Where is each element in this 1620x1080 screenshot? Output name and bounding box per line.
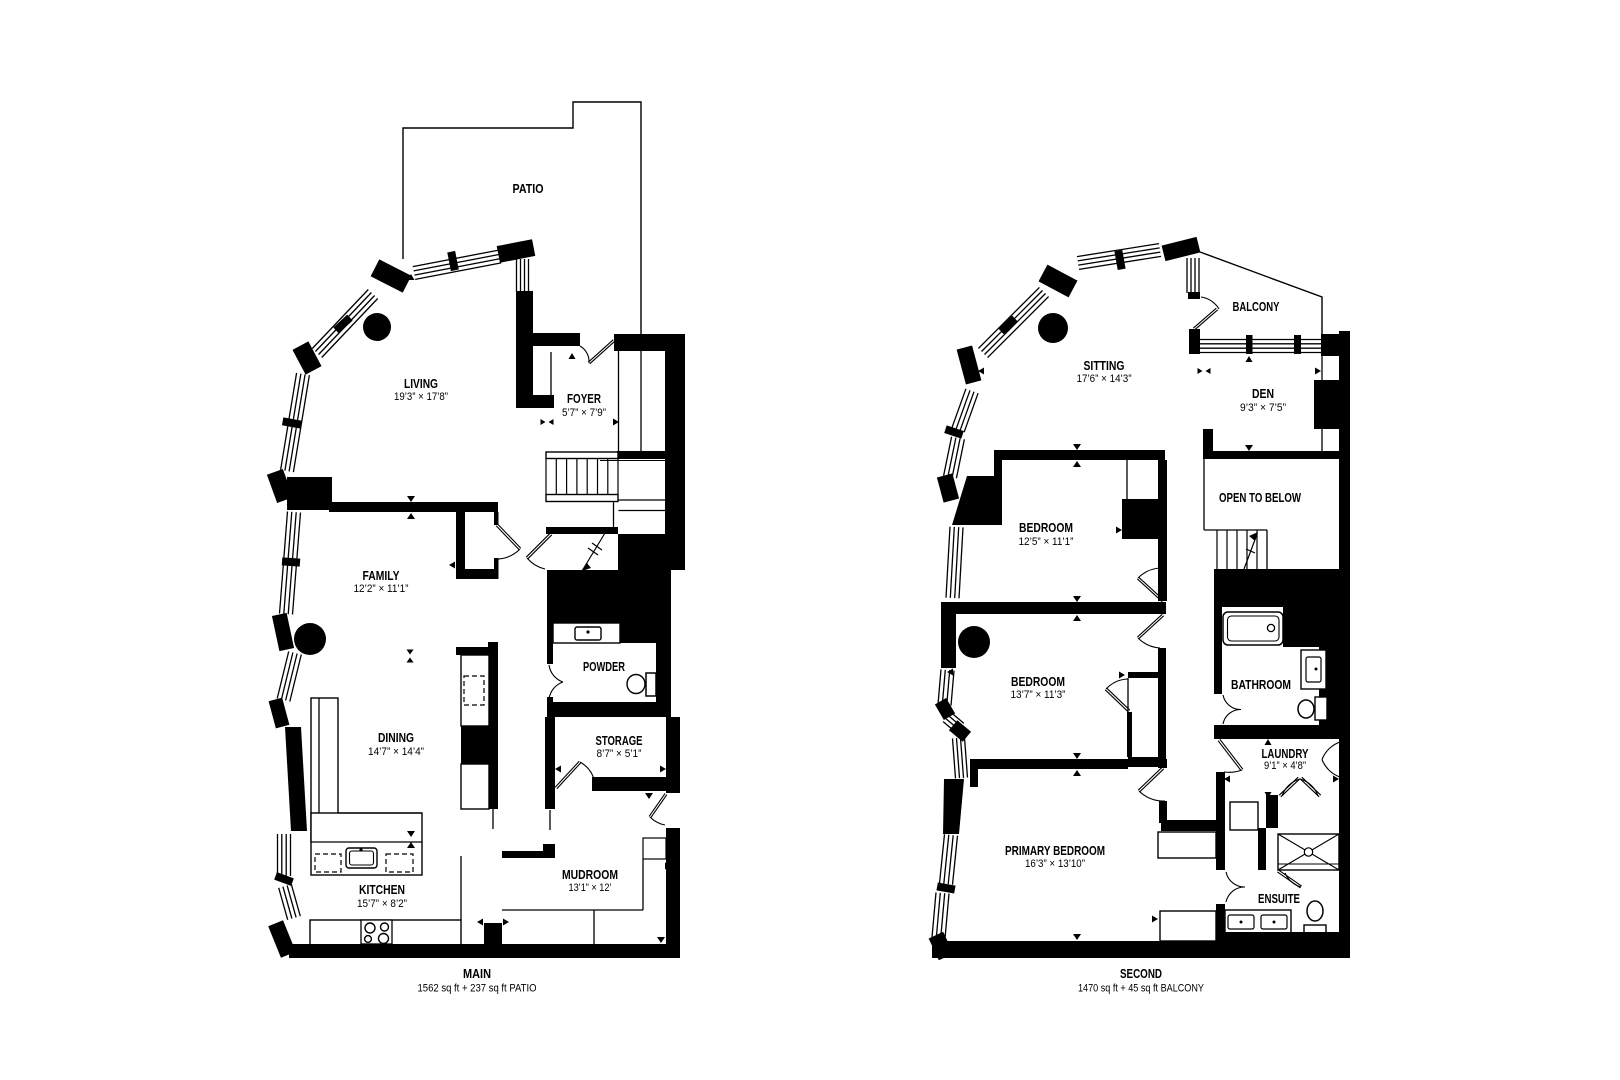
svg-text:MAIN: MAIN bbox=[463, 966, 491, 981]
svg-text:9’3” × 7’5”: 9’3” × 7’5” bbox=[1240, 402, 1286, 414]
svg-text:DINING: DINING bbox=[378, 730, 414, 745]
svg-text:PATIO: PATIO bbox=[513, 181, 544, 196]
svg-text:KITCHEN: KITCHEN bbox=[359, 882, 405, 897]
svg-text:SITTING: SITTING bbox=[1084, 358, 1125, 373]
svg-text:1562 sq ft + 237 sq ft PATIO: 1562 sq ft + 237 sq ft PATIO bbox=[418, 983, 537, 995]
svg-text:FOYER: FOYER bbox=[567, 391, 601, 406]
svg-text:9’1” × 4’8”: 9’1” × 4’8” bbox=[1264, 760, 1306, 772]
svg-text:LIVING: LIVING bbox=[404, 376, 438, 391]
svg-text:1470 sq ft + 45 sq ft BALCONY: 1470 sq ft + 45 sq ft BALCONY bbox=[1078, 983, 1205, 995]
svg-text:STORAGE: STORAGE bbox=[596, 733, 643, 748]
svg-text:13’7” × 11’3”: 13’7” × 11’3” bbox=[1011, 689, 1066, 701]
svg-text:16’3” × 13’10”: 16’3” × 13’10” bbox=[1025, 858, 1085, 870]
svg-text:OPEN TO BELOW: OPEN TO BELOW bbox=[1219, 490, 1302, 505]
svg-text:12’2” × 11’1”: 12’2” × 11’1” bbox=[354, 583, 409, 595]
svg-text:5’7” × 7’9”: 5’7” × 7’9” bbox=[562, 407, 606, 419]
svg-text:15’7” × 8’2”: 15’7” × 8’2” bbox=[357, 898, 407, 910]
svg-text:BALCONY: BALCONY bbox=[1233, 299, 1280, 314]
svg-text:LAUNDRY: LAUNDRY bbox=[1262, 746, 1309, 761]
svg-text:DEN: DEN bbox=[1252, 386, 1274, 401]
svg-text:BEDROOM: BEDROOM bbox=[1019, 520, 1073, 535]
svg-text:19’3” × 17’8”: 19’3” × 17’8” bbox=[394, 391, 448, 403]
svg-text:BEDROOM: BEDROOM bbox=[1011, 674, 1065, 689]
svg-text:PRIMARY BEDROOM: PRIMARY BEDROOM bbox=[1005, 843, 1105, 858]
svg-text:POWDER: POWDER bbox=[583, 659, 625, 674]
svg-text:8’7” × 5’1”: 8’7” × 5’1” bbox=[597, 748, 642, 760]
svg-text:12’5” × 11’1”: 12’5” × 11’1” bbox=[1019, 536, 1074, 548]
svg-text:MUDROOM: MUDROOM bbox=[562, 867, 618, 882]
svg-text:13’1” × 12’: 13’1” × 12’ bbox=[569, 882, 612, 894]
svg-text:BATHROOM: BATHROOM bbox=[1231, 677, 1291, 692]
svg-text:ENSUITE: ENSUITE bbox=[1258, 891, 1300, 906]
svg-text:SECOND: SECOND bbox=[1120, 966, 1162, 981]
svg-text:FAMILY: FAMILY bbox=[363, 568, 400, 583]
svg-text:17’6” × 14’3”: 17’6” × 14’3” bbox=[1077, 373, 1132, 385]
svg-text:14’7” × 14’4”: 14’7” × 14’4” bbox=[368, 746, 424, 758]
